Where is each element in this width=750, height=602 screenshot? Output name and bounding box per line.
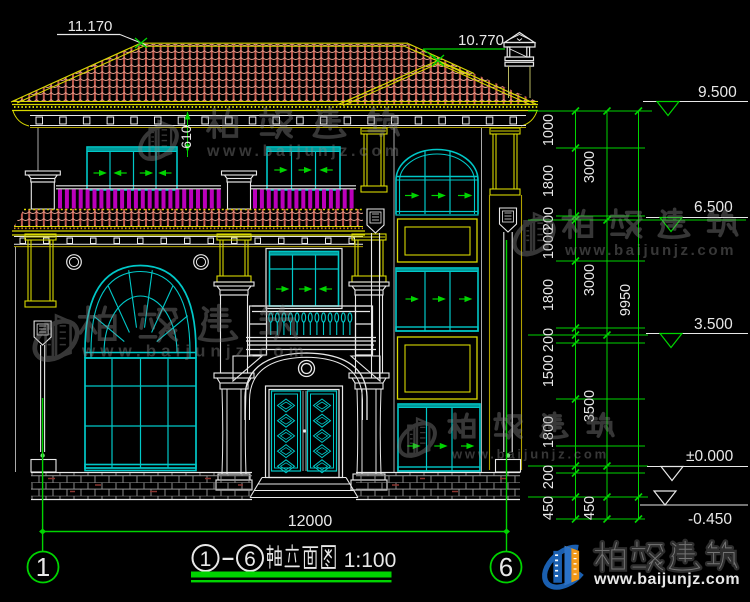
svg-text:1000: 1000	[541, 114, 557, 146]
svg-text:10.770: 10.770	[458, 32, 504, 49]
svg-text:450: 450	[582, 496, 598, 520]
svg-text:1:100: 1:100	[344, 549, 397, 572]
svg-text:www.baijunjz.com: www.baijunjz.com	[564, 242, 736, 259]
svg-text:3000: 3000	[582, 264, 598, 296]
svg-text:1: 1	[200, 548, 212, 571]
svg-text:1500: 1500	[541, 355, 557, 387]
svg-text:1: 1	[36, 552, 50, 582]
svg-text:www.baijunjz.com: www.baijunjz.com	[593, 571, 740, 588]
svg-text:11.170: 11.170	[68, 18, 113, 35]
svg-text:6: 6	[244, 548, 256, 571]
svg-text:12000: 12000	[288, 513, 333, 530]
svg-text:-0.450: -0.450	[688, 511, 732, 528]
svg-text:9950: 9950	[618, 284, 634, 316]
svg-text:3000: 3000	[582, 151, 598, 183]
svg-text:450: 450	[541, 496, 557, 520]
svg-text:200: 200	[541, 328, 557, 352]
svg-text:200: 200	[541, 465, 557, 489]
svg-text:www.baijunjz.com: www.baijunjz.com	[451, 446, 609, 461]
svg-text:±0.000: ±0.000	[686, 448, 734, 465]
svg-text:9.500: 9.500	[698, 84, 737, 101]
svg-text:1800: 1800	[541, 165, 557, 197]
svg-text:610: 610	[178, 125, 194, 149]
svg-text:6: 6	[499, 552, 513, 582]
svg-text:www.baijunjz.com: www.baijunjz.com	[206, 143, 403, 160]
svg-text:1800: 1800	[541, 279, 557, 311]
svg-text:www.baijunjz.com: www.baijunjz.com	[81, 342, 309, 361]
svg-text:–: –	[222, 545, 234, 570]
svg-text:3.500: 3.500	[694, 316, 733, 333]
